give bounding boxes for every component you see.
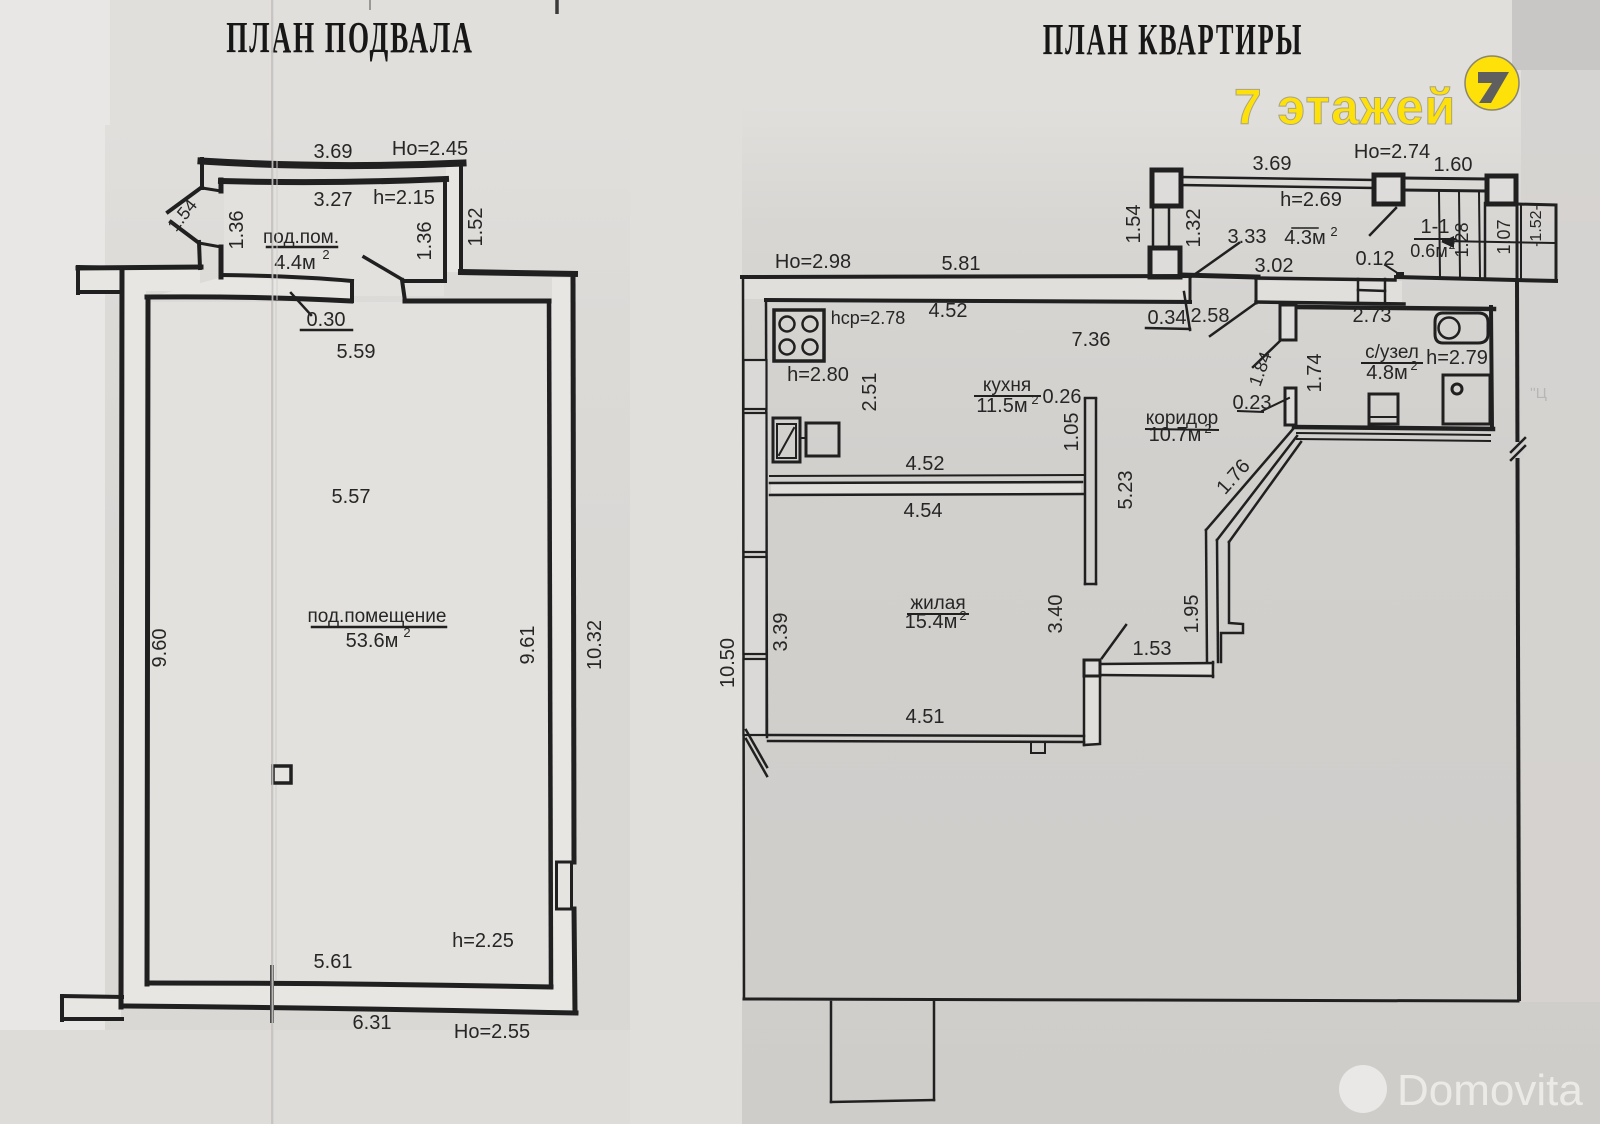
svg-text:5.23: 5.23 [1115,471,1137,510]
svg-text:5.81: 5.81 [942,253,981,275]
svg-text:10.7м: 10.7м [1149,424,1202,446]
svg-text:2: 2 [1330,224,1337,239]
svg-text:h=2.15: h=2.15 [373,187,435,209]
svg-text:7.36: 7.36 [1072,329,1111,351]
svg-text:h=2.79: h=2.79 [1426,347,1488,369]
svg-text:4.3м: 4.3м [1284,227,1326,249]
svg-text:ʹʹЦ: ʹʹЦ [1530,385,1547,402]
svg-text:9.60: 9.60 [149,629,171,668]
svg-text:6.31: 6.31 [353,1012,392,1034]
svg-text:1.28: 1.28 [1452,222,1472,257]
svg-text:Но=2.55: Но=2.55 [454,1021,530,1043]
svg-text:11.5м: 11.5м [976,395,1027,417]
svg-text:2.73: 2.73 [1353,305,1392,327]
svg-text:под.пом.: под.пом. [263,227,339,248]
svg-text:2: 2 [1410,358,1417,373]
svg-text:4.52: 4.52 [906,453,945,475]
svg-text:5.57: 5.57 [332,486,371,508]
svg-text:4.54: 4.54 [904,500,943,522]
svg-text:4.4м: 4.4м [274,252,316,274]
svg-text:h=2.25: h=2.25 [452,930,514,952]
svg-text:3.33: 3.33 [1228,226,1267,248]
svg-text:4.52: 4.52 [929,300,968,322]
svg-text:ПЛАН КВАРТИРЫ: ПЛАН КВАРТИРЫ [1043,15,1303,64]
svg-text:10.50: 10.50 [717,638,739,688]
svg-text:-1.52-: -1.52- [1528,205,1545,247]
svg-text:hср=2.78: hср=2.78 [831,308,906,328]
svg-text:под.помещение: под.помещение [308,606,447,627]
svg-text:4.8м: 4.8м [1366,362,1408,384]
svg-text:2: 2 [1204,421,1211,436]
svg-text:1.95: 1.95 [1181,595,1203,634]
svg-text:2: 2 [1031,392,1038,407]
svg-text:3.27: 3.27 [314,189,353,211]
svg-text:2: 2 [403,625,410,640]
svg-text:1.74: 1.74 [1304,354,1326,393]
svg-text:1.36: 1.36 [226,211,248,250]
svg-text:3.40: 3.40 [1045,595,1067,634]
svg-text:Но=2.98: Но=2.98 [775,251,851,273]
svg-text:h=2.80: h=2.80 [787,364,849,386]
svg-text:10.32: 10.32 [584,620,606,670]
svg-text:h=2.69: h=2.69 [1280,189,1342,211]
svg-text:1.52: 1.52 [465,208,487,247]
svg-text:Domovita: Domovita [1397,1066,1583,1115]
svg-text:1-1: 1-1 [1421,216,1450,238]
svg-text:2: 2 [322,247,329,262]
svg-text:1.60: 1.60 [1434,154,1473,176]
svg-text:0.6м: 0.6м [1410,241,1447,261]
svg-text:1.54: 1.54 [1123,205,1145,244]
svg-text:1.53: 1.53 [1133,638,1172,660]
svg-text:5.59: 5.59 [337,341,376,363]
svg-text:9.61: 9.61 [517,626,539,665]
svg-text:Но=2.74: Но=2.74 [1354,141,1430,163]
svg-text:кухня: кухня [983,375,1031,396]
svg-text:Но=2.45: Но=2.45 [392,138,468,160]
svg-text:1.05: 1.05 [1061,413,1083,452]
svg-text:4.51: 4.51 [906,706,945,728]
svg-text:15.4м: 15.4м [905,611,958,633]
svg-text:0.30: 0.30 [307,309,346,331]
svg-text:53.6м: 53.6м [346,630,399,652]
svg-text:ПЛАН ПОДВАЛА: ПЛАН ПОДВАЛА [226,12,474,61]
svg-text:1.36: 1.36 [414,222,436,261]
svg-text:3.02: 3.02 [1255,255,1294,277]
svg-text:3.69: 3.69 [314,141,353,163]
svg-text:2.58: 2.58 [1191,305,1230,327]
svg-text:2.51: 2.51 [859,373,881,412]
svg-text:7 этажей: 7 этажей [1234,79,1456,135]
svg-text:1.07: 1.07 [1494,219,1514,254]
svg-text:0.23: 0.23 [1233,392,1272,414]
svg-text:0.12: 0.12 [1356,248,1395,270]
svg-text:2: 2 [959,608,966,623]
svg-text:0.26: 0.26 [1043,386,1082,408]
svg-text:3.69: 3.69 [1253,153,1292,175]
svg-text:1.32: 1.32 [1183,209,1205,248]
svg-text:5.61: 5.61 [314,951,353,973]
svg-text:3.39: 3.39 [770,613,792,652]
svg-text:0.34: 0.34 [1148,307,1187,329]
